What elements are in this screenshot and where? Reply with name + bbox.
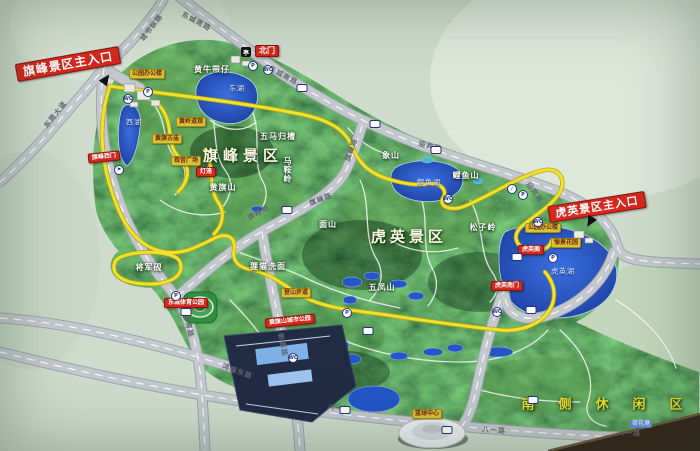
toilet-icon: WC: [443, 194, 453, 204]
basketball-center-label: 篮球中心: [412, 409, 442, 419]
liyu-lake-label: 鲤鱼湖: [417, 180, 441, 187]
music-fountain-icon: ♪: [507, 184, 517, 194]
bus-stop-icon: [340, 406, 351, 414]
road-dongchengnan-1: 东城南路: [180, 11, 212, 32]
wufengshan-label: 五凤山: [369, 284, 396, 292]
toilet-icon: WC: [492, 307, 502, 317]
park-map-photo: 旗峰景区虎英景区南侧休闲区黄牛带仔五马归槽马鞍岭黄旗山将军砚狸猫洗面面山象山鲤鱼…: [0, 0, 700, 451]
parking-icon: P: [518, 190, 528, 200]
bus-stop-icon: [282, 206, 293, 214]
park-office-label: 公园办公楼: [129, 69, 165, 79]
road-xinyuan: 新源路: [276, 333, 288, 358]
huangniudaizai-hill-label: 黄牛带仔: [194, 66, 230, 74]
road-dongguan-avenue: 东莞大道: [43, 100, 68, 130]
huangqi-old-temple-label: 黄旗古庙: [152, 134, 182, 144]
jiangjunyan-label: 将军砚: [136, 264, 163, 272]
parking-icon: P: [248, 61, 258, 71]
road-qifeng-2: 旗峰路: [309, 193, 334, 208]
west-lake-label: 西湖: [126, 120, 142, 127]
yujing-garden-label: 愉景花园: [551, 238, 581, 248]
road-qifeng-3: 旗峰路: [345, 138, 360, 163]
qifeng-scenic-area-title: 旗峰景区: [203, 149, 283, 164]
huying-main-entrance-label: 虎英景区主入口: [547, 191, 646, 223]
viewpoint-flag-icon: ⚑: [114, 165, 124, 175]
bus-stop-icon: [442, 426, 453, 434]
maanling-label: 马鞍岭: [283, 157, 291, 184]
huying-south-gate-label: 虎英南门: [491, 281, 523, 291]
toilet-icon: WC: [288, 353, 298, 363]
bus-stop-icon: [297, 84, 308, 92]
toilet-icon: WC: [123, 94, 133, 104]
bus-stop-icon: [526, 306, 537, 314]
lantern-label: 灯笼: [196, 167, 216, 177]
parking-icon: P: [548, 253, 558, 263]
north-gate-icon: 亭: [241, 47, 251, 57]
bus-stop-icon: [181, 308, 192, 316]
parking-icon: P: [171, 291, 181, 301]
bus-stop-icon: [370, 120, 381, 128]
qifeng-west-gate-label: 旗峰西门: [88, 150, 121, 163]
map-labels-layer: 旗峰景区虎英景区南侧休闲区黄牛带仔五马归槽马鞍岭黄旗山将军砚狸猫洗面面山象山鲤鱼…: [0, 0, 700, 451]
mianshan-label: 面山: [319, 221, 337, 229]
south-leisure-area-title: 南侧休闲区: [521, 399, 700, 412]
east-lake-label: 东湖: [229, 86, 245, 93]
hiking-trail-label: 登山步道: [281, 288, 311, 298]
bus-stop-icon: [512, 253, 523, 261]
wuma-guicao-label: 五马归槽: [260, 133, 296, 141]
songziling-label: 松子岭: [470, 224, 497, 232]
huangling-taoist-temple-label: 黄岭道观: [176, 117, 206, 127]
huying-scenic-area-title: 虎英景区: [371, 230, 447, 245]
north-gate-label: 北门: [255, 45, 279, 57]
xiangshan-label: 象山: [382, 152, 400, 160]
road-qifeng-1: 旗峰路: [247, 204, 271, 221]
road-hongfudong: 鸿福东路: [221, 363, 253, 381]
liyushan-label: 鲤鱼山: [453, 172, 480, 180]
road-chengshuzong: 城书纵路: [139, 13, 164, 43]
road-tiyu: 体育路: [182, 314, 194, 339]
parking-icon: P: [143, 87, 153, 97]
road-bayi-2: 八一路: [482, 427, 506, 436]
huying-lake-label: 虎英湖: [551, 269, 575, 276]
bus-stop-icon: [431, 146, 442, 154]
entrance-arrow-icon: [99, 72, 114, 87]
parking-icon: P: [342, 308, 352, 318]
lotus-pond-label: 荷花塘: [630, 420, 652, 428]
limao-ximian-label: 狸猫洗面: [250, 263, 286, 271]
toilet-icon: WC: [263, 65, 273, 75]
toilet-icon: WC: [533, 217, 543, 227]
bus-stop-icon: [363, 327, 374, 335]
guanyin-square-label: 观音广场: [171, 156, 201, 166]
bus-stop-icon: [528, 396, 539, 404]
huangqishan-city-park-label: 黄旗山城市公园: [265, 313, 316, 328]
dongcheng-sports-park-label: 东城体育公园: [164, 298, 208, 308]
road-bayi-3: 八一路: [617, 430, 641, 438]
huangqishan-label: 黄旗山: [210, 184, 237, 192]
park-office-east-label: 公园办公楼: [525, 223, 561, 233]
